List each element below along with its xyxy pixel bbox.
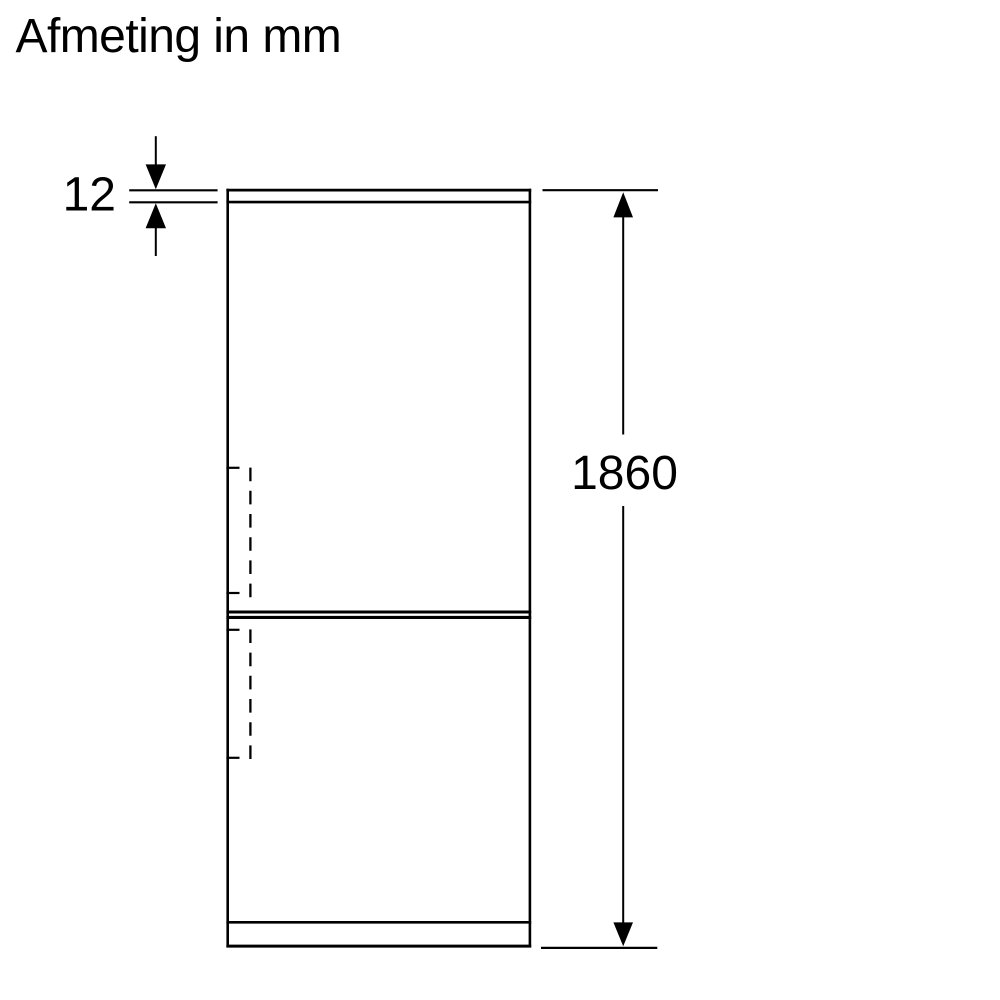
svg-text:1860: 1860 <box>571 447 678 500</box>
svg-text:Afmeting in mm: Afmeting in mm <box>16 10 342 63</box>
svg-text:12: 12 <box>63 168 116 221</box>
